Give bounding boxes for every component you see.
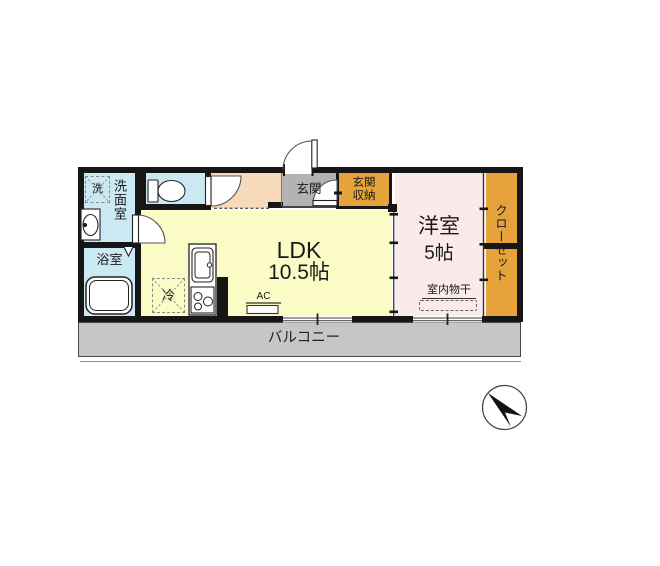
label-western-size: 5帖 — [395, 243, 483, 265]
window-western — [413, 314, 482, 326]
vanity-sink-icon — [81, 209, 100, 240]
washroom-door — [133, 215, 166, 243]
label-western-name: 洋室 — [395, 215, 483, 239]
label-washroom: 洗面室 — [111, 179, 129, 243]
bathtub-icon — [86, 277, 132, 314]
kitchen-icon — [189, 244, 216, 315]
label-ldk-name: LDK — [239, 237, 359, 263]
label-refrigerator: 冷 — [152, 278, 185, 313]
label-storage-line2: 収納 — [340, 190, 388, 203]
toilet-icon — [148, 180, 185, 202]
indoor-drying-box — [419, 300, 477, 311]
label-indoor-drying: 室内物干 — [422, 284, 476, 299]
label-washer: 洗 — [85, 176, 110, 203]
label-storage-line1: 玄関 — [340, 177, 388, 190]
window-ldk — [283, 314, 352, 326]
ac-unit-icon — [246, 303, 281, 314]
label-balcony: バルコニー — [200, 330, 408, 347]
label-closet: クローゼット — [493, 204, 510, 288]
floorplan-canvas: 洗 洗面室 浴室 冷 玄関 玄関 収納 LDK 10.5帖 洋室 5帖 クローゼ… — [0, 0, 660, 566]
label-ldk-size: 10.5帖 — [239, 261, 359, 285]
label-ac: AC — [246, 291, 281, 303]
label-bathroom: 浴室 — [84, 253, 135, 268]
compass-icon — [483, 386, 527, 430]
toilet-door — [206, 176, 242, 206]
label-entrance: 玄関 — [282, 182, 336, 196]
front-door — [283, 140, 317, 176]
